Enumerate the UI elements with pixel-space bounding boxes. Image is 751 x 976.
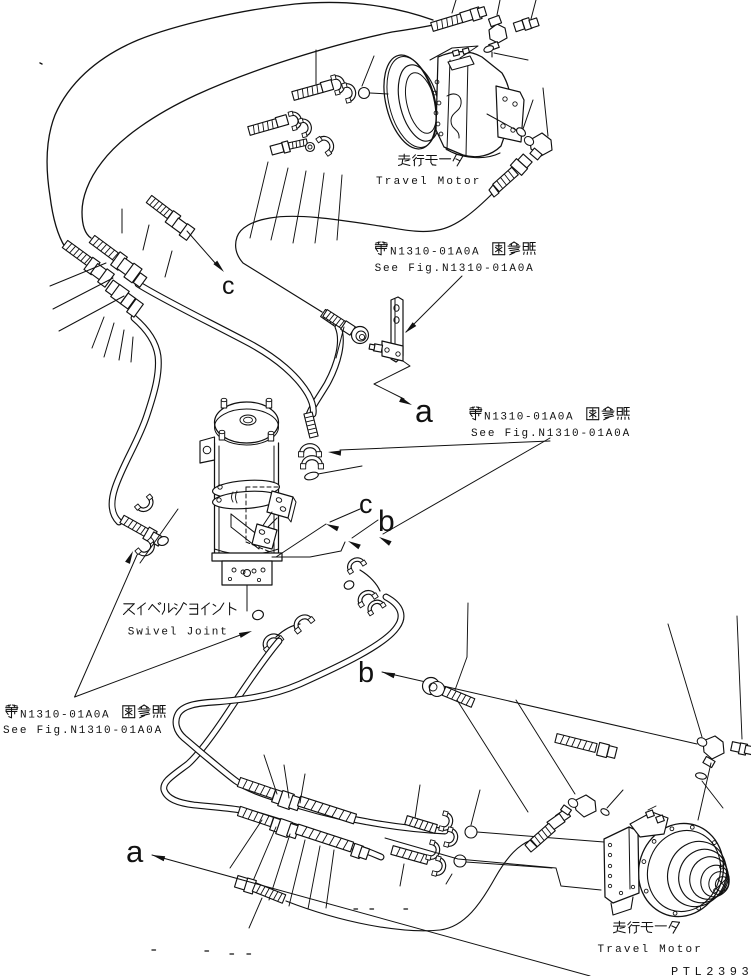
svg-text:Swivel Joint: Swivel Joint — [128, 627, 229, 639]
svg-text:See Fig.N1310-01A0A: See Fig.N1310-01A0A — [3, 725, 163, 737]
svg-text:a: a — [415, 393, 433, 429]
svg-text:b: b — [358, 657, 374, 689]
svg-text:Travel Motor: Travel Motor — [598, 944, 704, 956]
svg-text:a: a — [126, 834, 144, 869]
svg-text:N1310-01A0A: N1310-01A0A — [390, 247, 480, 259]
svg-text:See Fig.N1310-01A0A: See Fig.N1310-01A0A — [375, 263, 535, 275]
svg-text:PTL2393: PTL2393 — [671, 965, 751, 976]
svg-text:b: b — [378, 505, 395, 538]
svg-text:c: c — [222, 272, 235, 300]
svg-text:See Fig.N1310-01A0A: See Fig.N1310-01A0A — [471, 428, 631, 440]
svg-text:N1310-01A0A: N1310-01A0A — [20, 710, 110, 722]
svg-text:c: c — [359, 489, 373, 519]
svg-text:Travel Motor: Travel Motor — [376, 176, 482, 188]
svg-text:N1310-01A0A: N1310-01A0A — [484, 412, 574, 424]
